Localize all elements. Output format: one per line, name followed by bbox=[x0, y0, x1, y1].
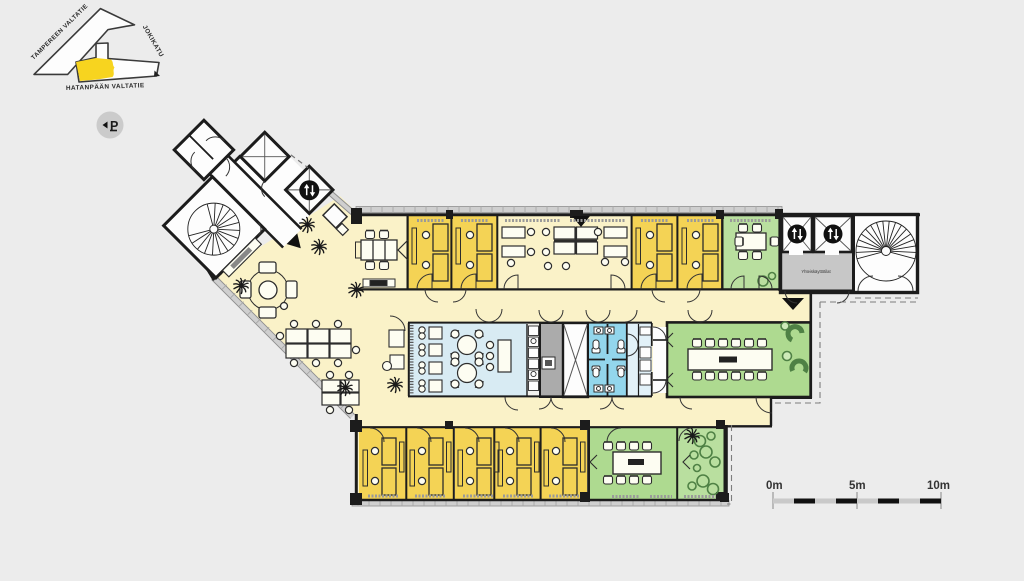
svg-text:0m: 0m bbox=[766, 480, 783, 492]
svg-text:Yhteiskäyttötilat: Yhteiskäyttötilat bbox=[801, 269, 831, 274]
svg-text:10m: 10m bbox=[927, 480, 950, 492]
svg-text:5m: 5m bbox=[849, 480, 866, 492]
